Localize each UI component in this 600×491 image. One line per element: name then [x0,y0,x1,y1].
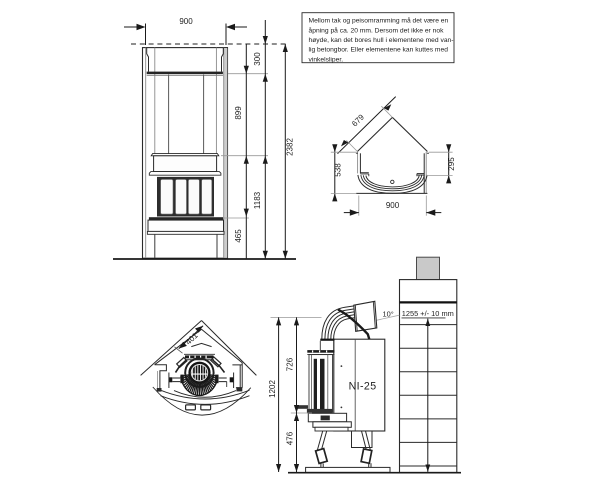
svg-text:465: 465 [234,229,243,243]
svg-text:538: 538 [334,163,343,177]
svg-text:NI-25: NI-25 [349,381,377,393]
svg-text:476: 476 [285,431,294,445]
svg-text:1202: 1202 [268,380,277,398]
svg-text:300: 300 [253,52,262,66]
svg-text:høyde, kan det bores hull i el: høyde, kan det bores hull i elementene m… [309,37,454,44]
svg-text:899: 899 [234,106,243,120]
svg-text:åpning på ca. 20 mm. Dersom de: åpning på ca. 20 mm. Dersom det ikke er … [309,26,445,34]
svg-text:lig betongbor. Eller elementen: lig betongbor. Eller elementene kan kutt… [309,47,449,54]
svg-text:vinkelsliper.: vinkelsliper. [309,56,344,63]
svg-text:1183: 1183 [253,191,262,209]
svg-text:1255 +/- 10 mm: 1255 +/- 10 mm [402,309,454,318]
svg-text:295: 295 [447,157,456,171]
svg-text:900: 900 [179,17,193,26]
svg-text:2382: 2382 [285,138,294,156]
svg-text:900: 900 [386,201,400,210]
svg-text:726: 726 [285,357,294,371]
svg-text:Mellom tak og peisomramming må: Mellom tak og peisomramming må det være … [309,17,449,25]
